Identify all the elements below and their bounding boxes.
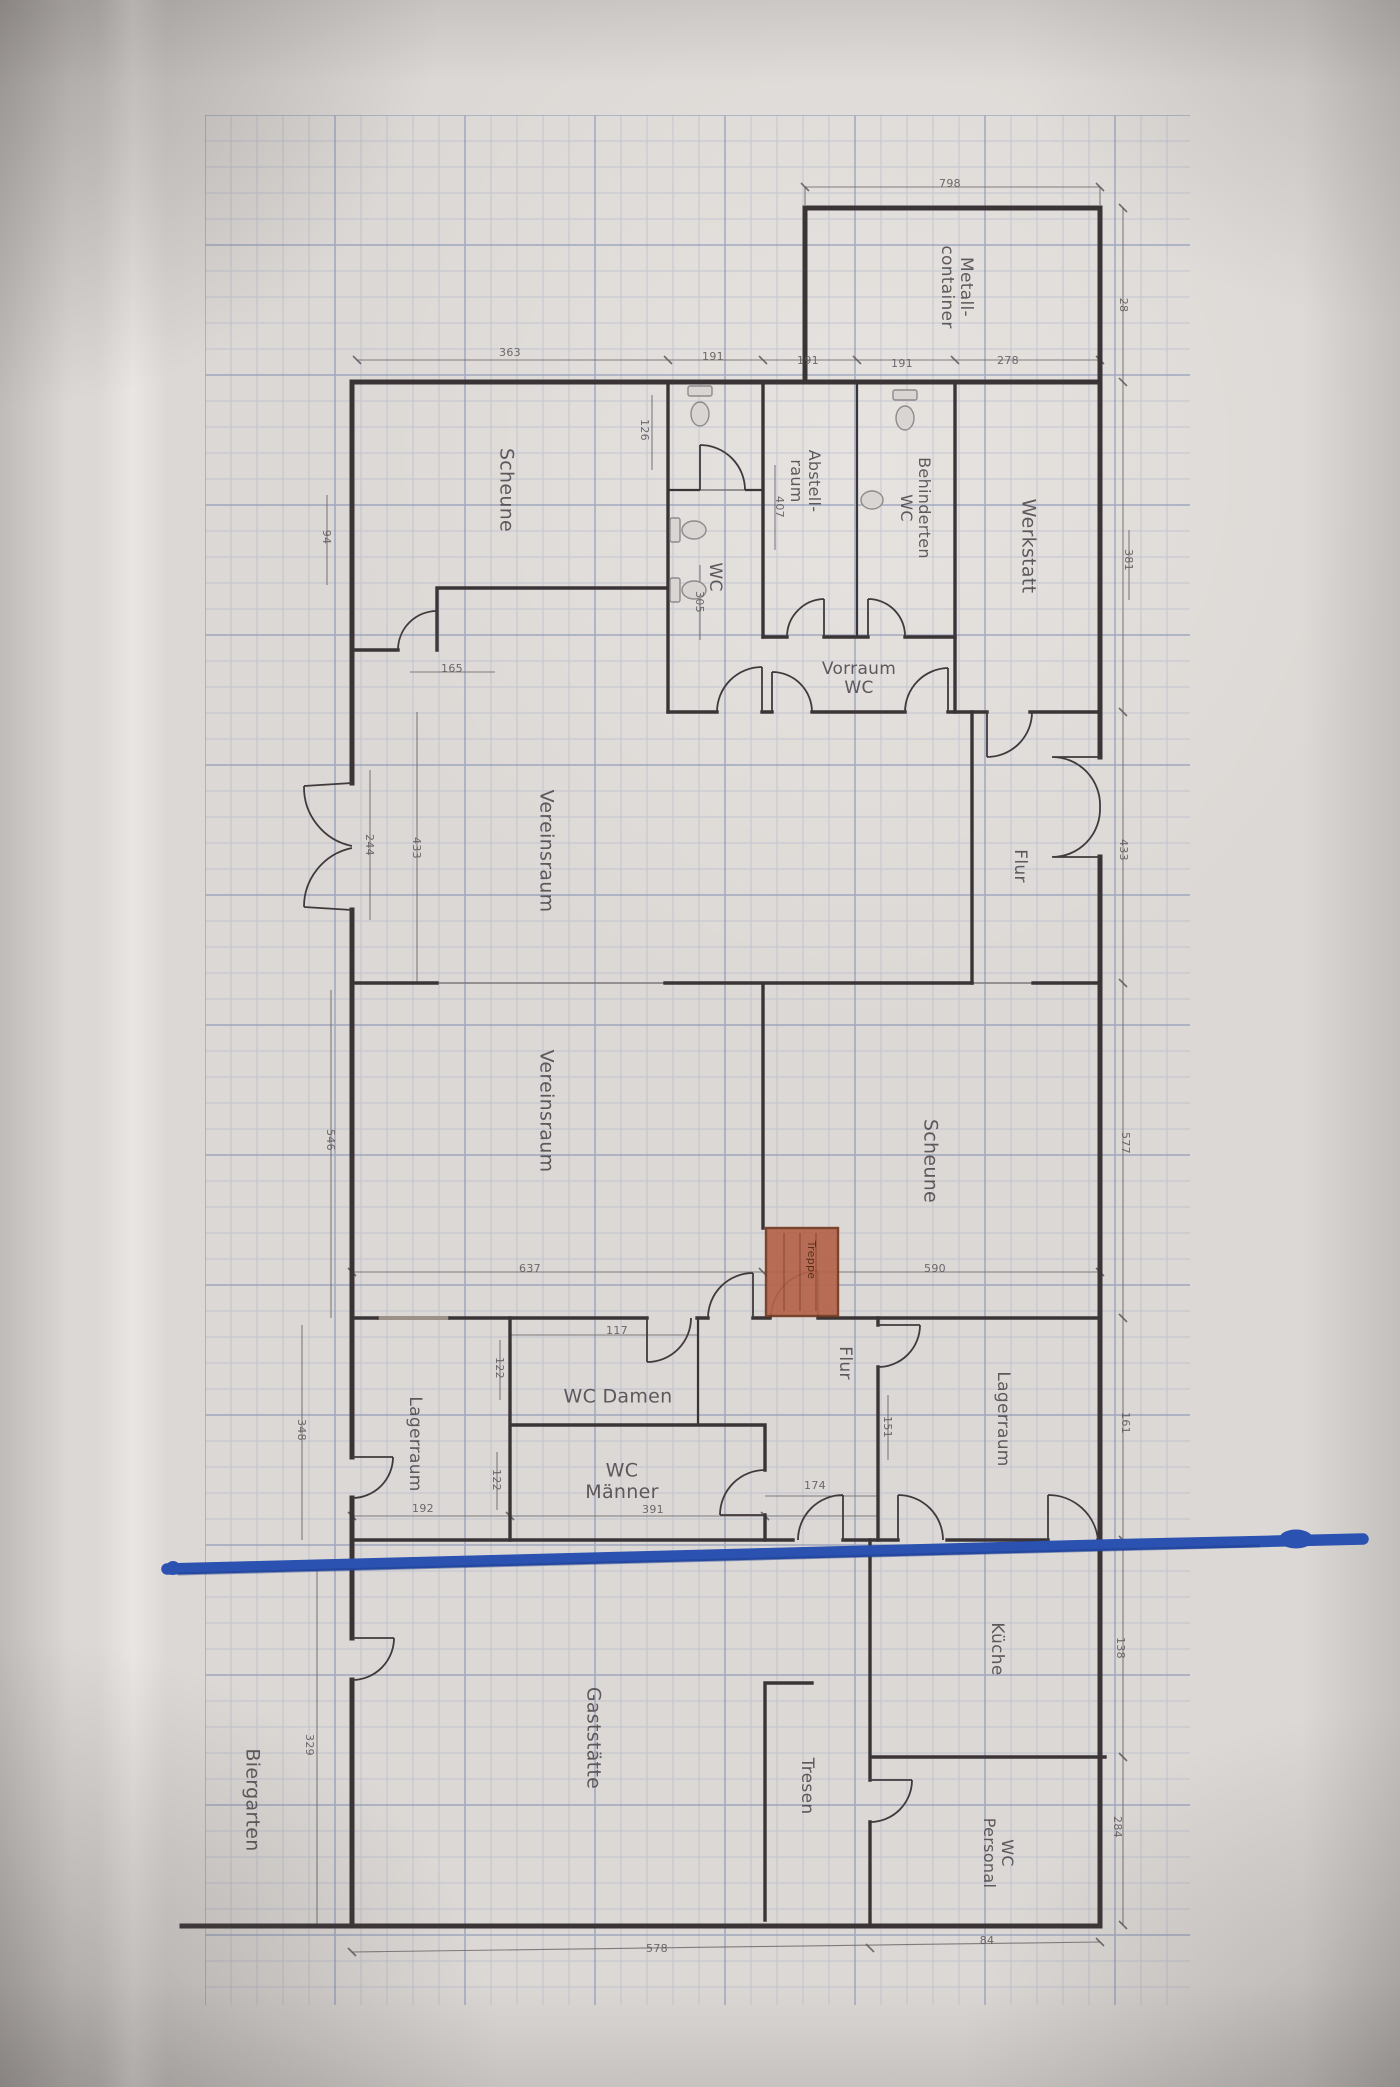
room-label-wc-upper: WC (705, 562, 725, 591)
room-label-treppe: Treppe (805, 1240, 818, 1280)
dim-label-305-16: 305 (693, 591, 706, 613)
dim-label-151-26: 151 (881, 1416, 894, 1438)
dim-label-577-9: 577 (1119, 1132, 1132, 1154)
room-label-kueche: Küche (987, 1622, 1007, 1675)
dim-label-126-14: 126 (638, 419, 651, 441)
room-label-tresen: Tresen (797, 1757, 817, 1815)
room-label-werkstatt: Werkstatt (1017, 499, 1039, 594)
dim-label-117-23: 117 (606, 1324, 628, 1337)
dim-label-348-30: 348 (295, 1419, 308, 1441)
room-label-metallcontainer: Metall-container (937, 245, 976, 328)
dim-label-138-11: 138 (1114, 1637, 1127, 1659)
dim-label-161-10: 161 (1119, 1412, 1132, 1434)
dim-label-578-32: 578 (646, 1942, 668, 1955)
dim-label-192-28: 192 (412, 1502, 434, 1515)
room-label-wc-damen: WC Damen (563, 1386, 672, 1408)
room-label-flur-oben: Flur (1010, 849, 1030, 882)
dim-label-433-8: 433 (1117, 839, 1130, 861)
dim-label-637-21: 637 (519, 1262, 541, 1275)
floor-plan-drawing: Metall-containerScheuneWCAbstell-raumBeh… (0, 0, 1400, 2087)
room-label-vereinsraum-2: Vereinsraum (535, 1050, 557, 1173)
dim-label-122-25: 122 (490, 1469, 503, 1491)
room-label-biergarten: Biergarten (241, 1748, 263, 1851)
dim-label-284-12: 284 (1111, 1816, 1124, 1838)
dim-label-191-3: 191 (797, 354, 819, 367)
dim-label-329-31: 329 (303, 1734, 316, 1756)
room-label-lagerraum-links: Lagerraum (405, 1396, 425, 1491)
floor-plan-photo: Metall-containerScheuneWCAbstell-raumBeh… (0, 0, 1400, 2087)
dim-label-244-18: 244 (363, 834, 376, 856)
dim-label-165-17: 165 (441, 662, 463, 675)
dim-label-363-1: 363 (499, 346, 521, 359)
dim-label-28-6: 28 (1117, 298, 1130, 313)
dim-label-381-7: 381 (1122, 549, 1135, 571)
dim-label-84-33: 84 (980, 1934, 995, 1947)
dim-label-122-24: 122 (493, 1357, 506, 1379)
room-label-vereinsraum-1: Vereinsraum (535, 790, 557, 913)
dim-label-407-15: 407 (773, 496, 786, 518)
room-label-scheune-top: Scheune (495, 448, 517, 532)
dim-label-546-20: 546 (324, 1129, 337, 1151)
stairs-box (766, 1228, 838, 1316)
dim-label-798-0: 798 (939, 177, 961, 190)
dim-label-191-2: 191 (702, 350, 724, 363)
dim-label-278-5: 278 (997, 354, 1019, 367)
dim-label-433-19: 433 (410, 837, 423, 859)
room-label-flur-unten: Flur (835, 1346, 855, 1379)
dim-label-191-4: 191 (891, 357, 913, 370)
sink-icon (861, 491, 883, 509)
dim-label-94-13: 94 (320, 530, 333, 545)
room-label-scheune-mitte: Scheune (919, 1119, 941, 1203)
room-label-gaststaette: Gaststätte (582, 1687, 604, 1789)
dim-label-391-29: 391 (642, 1503, 664, 1516)
room-label-lagerraum-rechts: Lagerraum (993, 1371, 1013, 1466)
marker-blob (1279, 1530, 1313, 1549)
dim-label-590-22: 590 (924, 1262, 946, 1275)
dim-label-174-27: 174 (804, 1479, 826, 1492)
